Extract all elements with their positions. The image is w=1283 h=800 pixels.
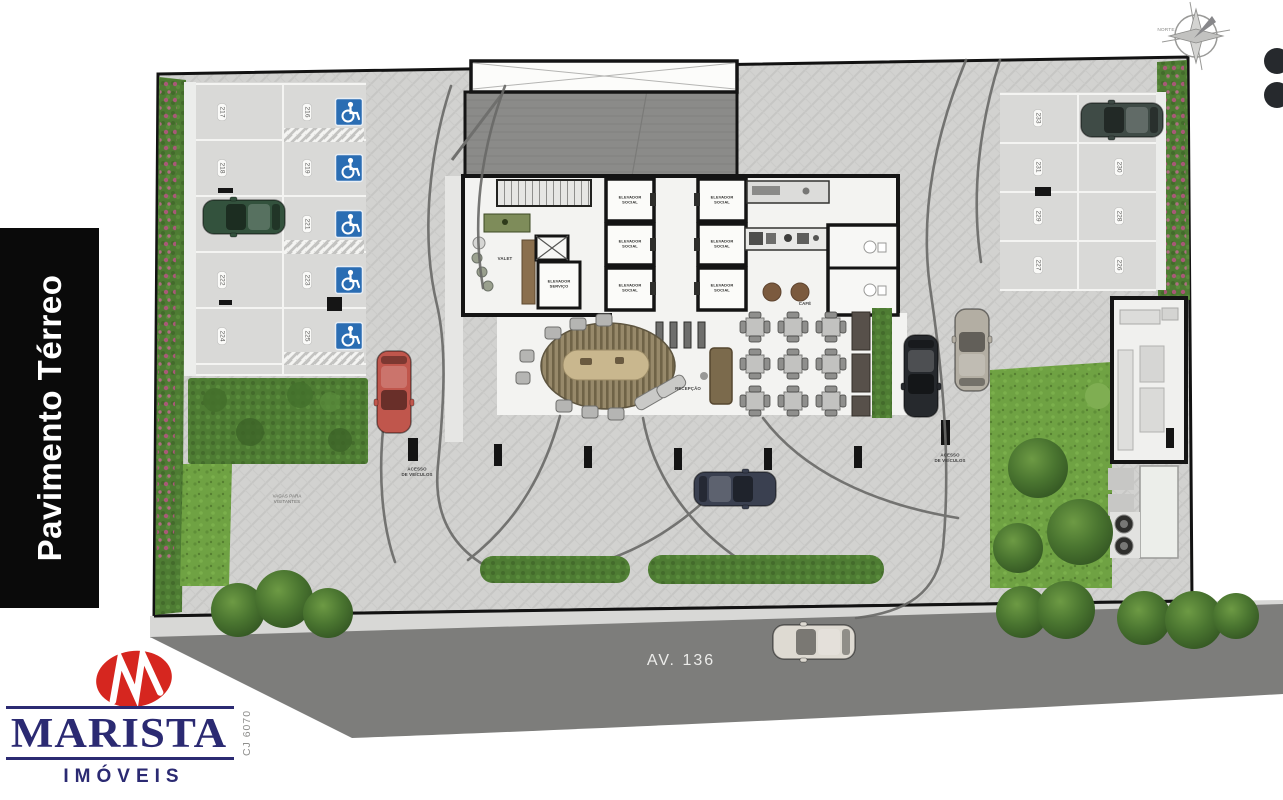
- elevator-label: ELEVADORSOCIAL: [711, 283, 734, 293]
- stall-number: 230: [1114, 158, 1124, 176]
- car-dark-blue: [694, 469, 776, 509]
- car-parked-right: [1081, 100, 1163, 140]
- elevator-label: ELEVADORSOCIAL: [711, 239, 734, 249]
- stall-number: 219: [302, 159, 312, 177]
- elevator-label: ELEVADORSOCIAL: [619, 239, 642, 249]
- stall-number: 231: [1033, 158, 1043, 176]
- hedgerow: [480, 556, 630, 583]
- floor-title: Pavimento Térreo: [31, 275, 69, 562]
- visitor-parking-label: VAGAS PARAVISITANTES: [273, 494, 302, 505]
- brand-rule-bottom: [6, 757, 234, 760]
- stairs: [497, 180, 591, 206]
- vehicle-access-label-right: ACESSODE VEÍCULOS: [934, 453, 965, 464]
- north-label: NORTE: [1157, 27, 1174, 33]
- stall-number: 218: [217, 159, 227, 177]
- stall-number: 224: [217, 327, 227, 345]
- stall-number: 228: [1114, 207, 1124, 225]
- cafe-seating: [740, 308, 892, 418]
- street-name: AV. 136: [647, 652, 715, 670]
- reception-desk: [710, 348, 732, 404]
- tree-cluster-right1: [996, 581, 1095, 639]
- floor-title-bar: Pavimento Térreo: [0, 228, 99, 608]
- stall-number: 227: [1033, 256, 1043, 274]
- stall-number: 229: [1033, 207, 1043, 225]
- wheelchair-icon: [336, 155, 363, 182]
- stall-number: 221: [302, 215, 312, 233]
- car-silver: [952, 309, 992, 391]
- van-white: [773, 622, 855, 662]
- reception-label: RECEPÇÃO: [675, 386, 701, 392]
- skylight: [471, 61, 737, 92]
- car-green-suv: [203, 197, 285, 237]
- wheelchair-icon: [336, 211, 363, 238]
- elevator-label: ELEVADORSOCIAL: [619, 195, 642, 205]
- brand-registry: CJ 6070: [241, 710, 253, 756]
- service-elevator-label: ELEVADORSERVIÇO: [548, 279, 571, 289]
- stall-number: 225: [302, 327, 312, 345]
- cafe-label: CAFÉ: [799, 301, 811, 307]
- stall-number: 222: [217, 271, 227, 289]
- wheelchair-icon: [336, 99, 363, 126]
- car-black: [901, 335, 941, 417]
- elevator-label: ELEVADORSOCIAL: [619, 283, 642, 293]
- brand-subtitle: IMÓVEIS: [63, 766, 184, 788]
- carousel-dot[interactable]: [1264, 48, 1283, 74]
- restrooms: [828, 225, 898, 315]
- stall-number: 233: [1033, 109, 1043, 127]
- hedgerow: [648, 555, 884, 584]
- stall-number: 217: [217, 103, 227, 121]
- vehicle-access-label-left: ACESSODE VEÍCULOS: [401, 467, 432, 478]
- car-red: [374, 351, 414, 433]
- stall-number: 216: [302, 103, 312, 121]
- carousel-dot[interactable]: [1264, 82, 1283, 108]
- wheelchair-icon: [336, 267, 363, 294]
- site-plan: [0, 0, 1283, 800]
- valet-label: VALET: [498, 256, 513, 262]
- stall-number: 223: [302, 271, 312, 289]
- stall-number: 226: [1114, 256, 1124, 274]
- pavilion-right: [1108, 298, 1186, 558]
- wheelchair-icon: [336, 323, 363, 350]
- brand-name: MARISTA: [11, 709, 227, 758]
- elevator-label: ELEVADORSOCIAL: [711, 195, 734, 205]
- brand-mark-icon: [92, 646, 176, 712]
